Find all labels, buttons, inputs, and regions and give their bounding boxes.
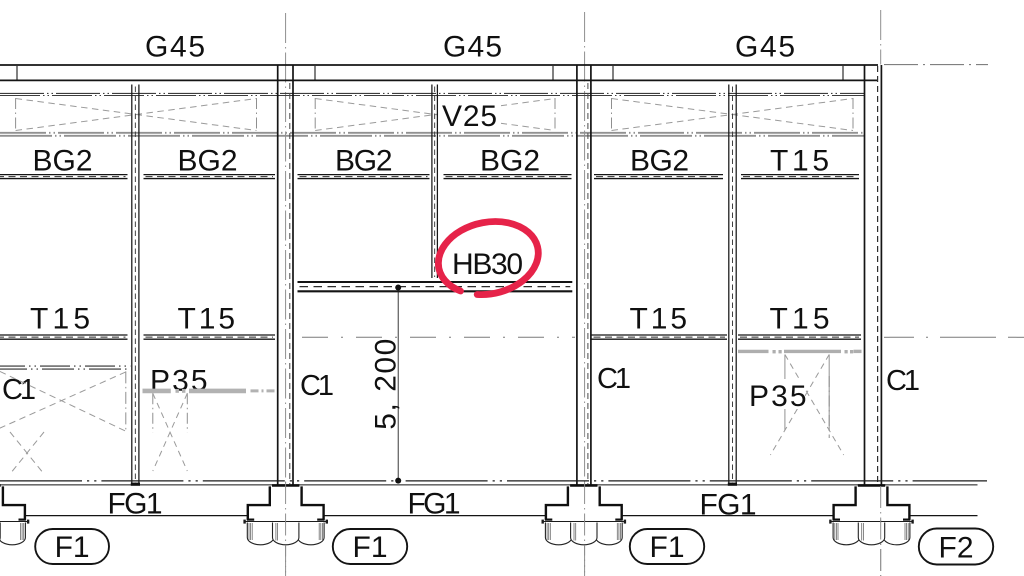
svg-text:FG1: FG1 — [408, 488, 461, 521]
svg-text:G45: G45 — [735, 31, 795, 64]
svg-text:BG2: BG2 — [33, 145, 93, 178]
svg-text:FG1: FG1 — [700, 489, 757, 522]
svg-text:C1: C1 — [597, 363, 631, 395]
svg-text:BG2: BG2 — [480, 145, 540, 178]
svg-text:F2: F2 — [939, 532, 974, 565]
svg-text:T15: T15 — [178, 303, 236, 336]
svg-text:T15: T15 — [630, 303, 688, 336]
svg-text:V25: V25 — [442, 100, 497, 133]
svg-text:T15: T15 — [770, 303, 830, 336]
svg-text:C1: C1 — [886, 365, 920, 397]
svg-text:BG2: BG2 — [335, 145, 393, 178]
svg-text:P35: P35 — [749, 380, 807, 413]
svg-text:G45: G45 — [443, 31, 502, 64]
svg-text:HB30: HB30 — [452, 248, 523, 281]
svg-text:F1: F1 — [55, 531, 90, 564]
svg-text:C1: C1 — [2, 374, 36, 406]
svg-text:C1: C1 — [300, 370, 334, 402]
svg-text:5, 200: 5, 200 — [369, 339, 402, 430]
svg-text:F1: F1 — [353, 531, 388, 564]
svg-text:T15: T15 — [30, 303, 90, 336]
svg-text:BG2: BG2 — [178, 145, 238, 178]
svg-text:BG2: BG2 — [630, 145, 689, 178]
svg-text:T15: T15 — [770, 145, 829, 178]
svg-text:FG1: FG1 — [108, 488, 163, 521]
svg-text:F1: F1 — [650, 531, 685, 564]
svg-text:G45: G45 — [145, 31, 205, 64]
